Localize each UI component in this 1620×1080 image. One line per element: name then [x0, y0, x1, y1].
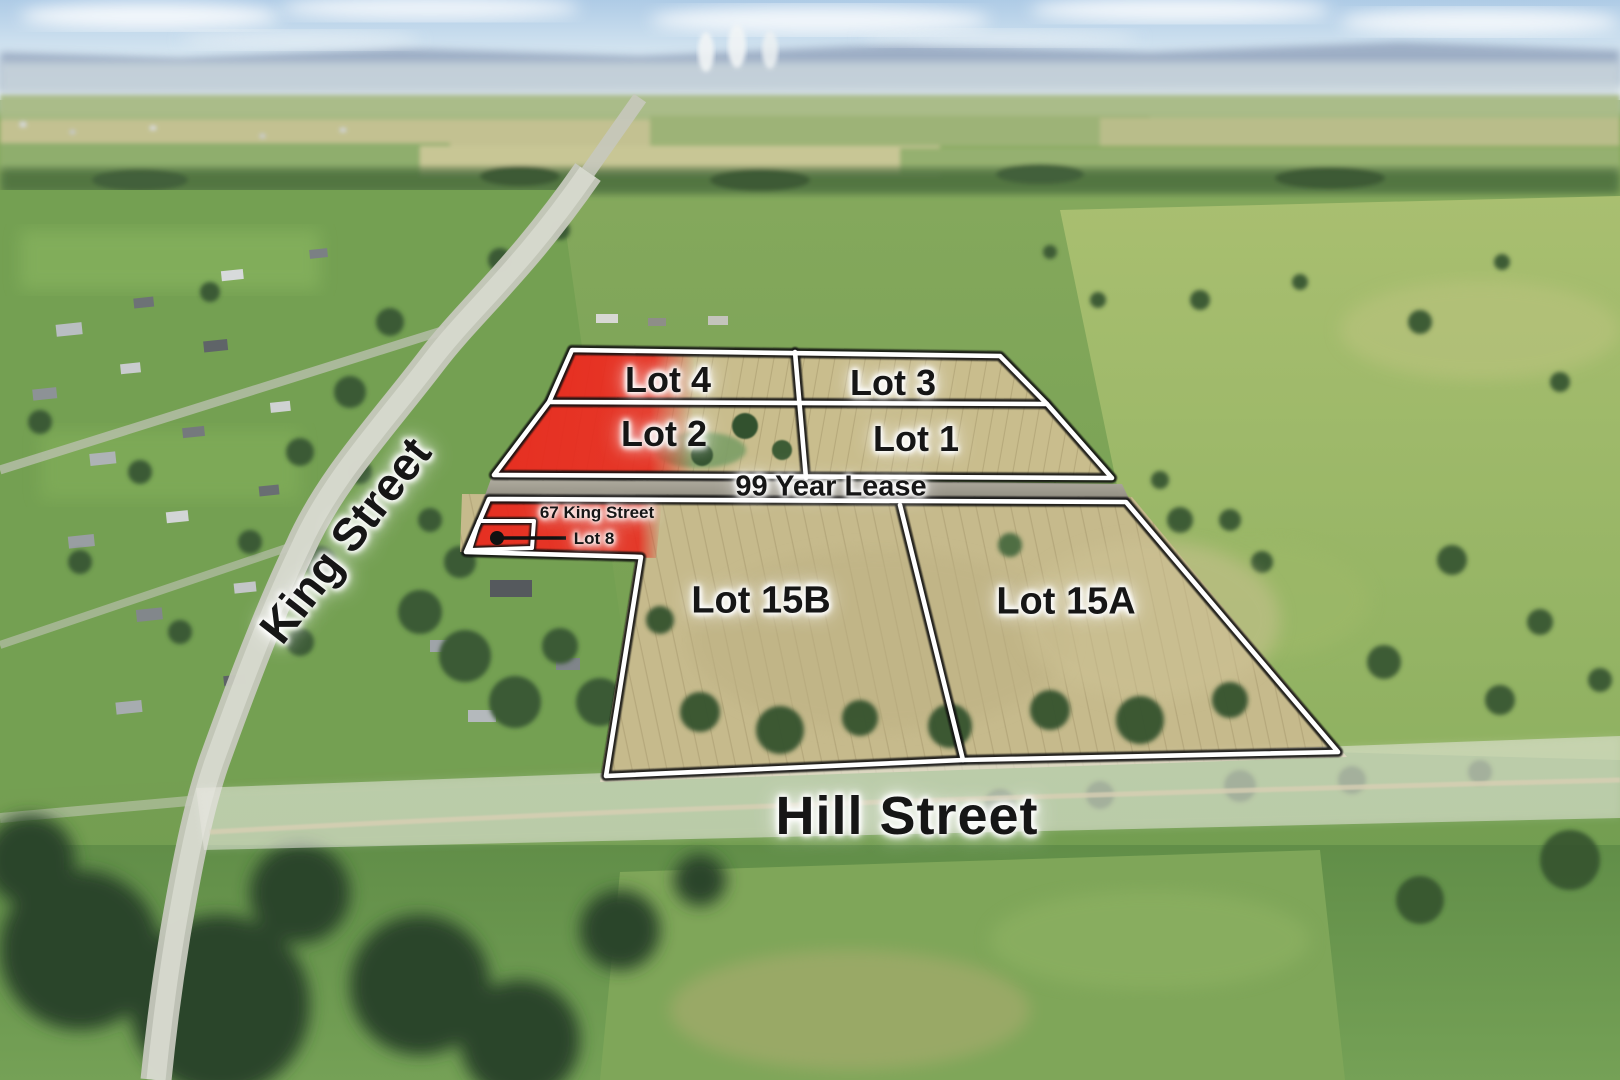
lot-8-label: Lot 8 [574, 529, 615, 549]
lot-15a-label: Lot 15A [996, 581, 1135, 624]
lot-15b-label: Lot 15B [691, 580, 830, 623]
lot-1-label: Lot 1 [873, 418, 959, 460]
hill-street-label: Hill Street [775, 785, 1038, 847]
aerial-lot-map: ) [0, 0, 1620, 1080]
lease-road-label: 99 Year Lease [735, 471, 926, 504]
scenery: ) [0, 0, 1620, 1080]
lot-3-label: Lot 3 [850, 362, 936, 404]
lot-2-label: Lot 2 [621, 413, 707, 455]
lot-4-label: Lot 4 [625, 359, 711, 401]
lot-8-address-label: 67 King Street [540, 503, 654, 523]
aerial-photo-svg: ) [0, 0, 1620, 1080]
distant-farmland [0, 95, 1620, 194]
lot8-marker-dot [490, 531, 504, 545]
